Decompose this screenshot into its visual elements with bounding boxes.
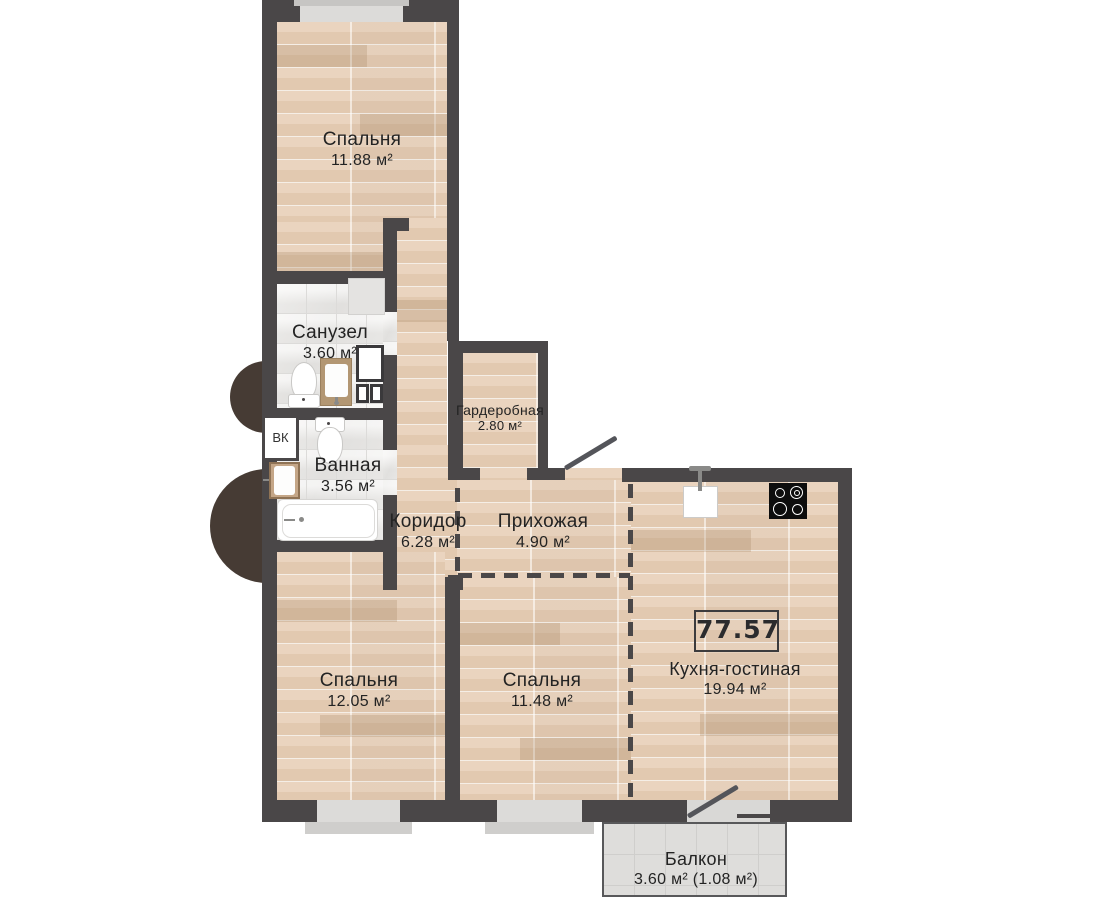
entry-door-leaf bbox=[564, 435, 618, 470]
label-balcony: Балкон 3.60 м² (1.08 м²) bbox=[601, 848, 791, 890]
zone-dash-bedroom-kitchen bbox=[628, 484, 633, 800]
room-name: Спальня bbox=[279, 670, 439, 692]
floor-plan: ВК 77.57 Спальня 11.88 м² Санузел 3.60 м… bbox=[0, 0, 1116, 901]
total-area-value: 77.57 bbox=[696, 615, 780, 644]
wall-bedrooms-divider bbox=[445, 577, 460, 800]
window-bedroom-middle bbox=[497, 800, 582, 822]
label-garderobnaya: Гардеробная 2.80 м² bbox=[440, 402, 560, 434]
wall-bath-east-2 bbox=[383, 355, 397, 450]
wall-bath-east-1 bbox=[383, 271, 397, 312]
plank-shade bbox=[277, 600, 397, 622]
label-sanuzel: Санузел 3.60 м² bbox=[270, 322, 390, 364]
plank-shade bbox=[397, 300, 447, 322]
balcony-door-threshold bbox=[737, 814, 772, 818]
total-area-badge: 77.57 bbox=[694, 610, 779, 652]
room-area: 11.88 м² bbox=[282, 151, 442, 171]
label-bedroom-middle: Спальня 11.48 м² bbox=[462, 670, 622, 712]
sink-vanity bbox=[320, 358, 352, 406]
room-name: Кухня-гостиная bbox=[640, 658, 830, 680]
room-area: 3.60 м² bbox=[270, 344, 390, 364]
floor-garderobnaya-door bbox=[480, 468, 527, 480]
plank-shade bbox=[320, 715, 445, 737]
cabinet-small-right bbox=[370, 384, 383, 403]
room-name: Санузел bbox=[270, 322, 390, 344]
bathtub bbox=[277, 499, 378, 541]
room-name: Спальня bbox=[462, 670, 622, 692]
room-area: 3.56 м² bbox=[288, 477, 408, 497]
label-prihozhaya: Прихожая 4.90 м² bbox=[483, 511, 603, 553]
room-name: Балкон bbox=[601, 848, 791, 870]
room-area: 19.94 м² bbox=[640, 680, 830, 700]
plank-shade bbox=[631, 530, 751, 552]
room-name: Прихожая bbox=[483, 511, 603, 533]
wall-right-top-wing bbox=[447, 0, 459, 341]
room-area: 11.48 м² bbox=[462, 692, 622, 712]
plank-shade bbox=[700, 714, 838, 736]
wall-garderobnaya-top bbox=[448, 341, 548, 353]
room-area: 2.80 м² bbox=[440, 418, 560, 434]
room-area: 12.05 м² bbox=[279, 692, 439, 712]
room-area: 3.60 м² (1.08 м²) bbox=[601, 870, 791, 890]
label-kitchen-living: Кухня-гостиная 19.94 м² bbox=[640, 658, 830, 700]
window-top bbox=[300, 6, 403, 22]
wall-bedroom-door-stub bbox=[383, 218, 409, 231]
cabinet-small-left bbox=[356, 384, 369, 403]
plank-shade bbox=[460, 623, 560, 645]
wall-kitchen-top bbox=[622, 468, 852, 482]
room-name: Ванная bbox=[288, 455, 408, 477]
wall-bottom-3 bbox=[582, 800, 687, 822]
label-vannaya: Ванная 3.56 м² bbox=[288, 455, 408, 497]
toilet bbox=[288, 362, 318, 406]
label-bedroom-top: Спальня 11.88 м² bbox=[282, 129, 442, 171]
shower-cabinet bbox=[348, 278, 385, 315]
plank-shade bbox=[520, 738, 631, 760]
window-sill-bedroom-left bbox=[305, 822, 412, 834]
room-name: Спальня bbox=[282, 129, 442, 151]
window-bedroom-left bbox=[317, 800, 400, 822]
zone-dash-prihozhaya-bedroom bbox=[458, 573, 630, 578]
kitchen-faucet bbox=[689, 466, 711, 492]
wall-entry-piece bbox=[527, 468, 565, 480]
plank-shade bbox=[277, 252, 383, 271]
wall-bottom-4 bbox=[770, 800, 852, 822]
window-sill-bedroom-middle bbox=[485, 822, 594, 834]
room-area: 4.90 м² bbox=[483, 533, 603, 553]
label-koridor: Коридор 6.28 м² bbox=[368, 511, 488, 553]
ventilation-shaft-label: ВК bbox=[272, 430, 288, 445]
room-name: Коридор bbox=[368, 511, 488, 533]
room-name: Гардеробная bbox=[440, 402, 560, 418]
cooktop bbox=[769, 483, 807, 519]
wall-kitchen-right bbox=[838, 468, 852, 822]
wall-bottom-1 bbox=[262, 800, 317, 822]
wall-bottom-2 bbox=[400, 800, 497, 822]
wall-garderobnaya-bottom-left bbox=[448, 468, 480, 480]
label-bedroom-left: Спальня 12.05 м² bbox=[279, 670, 439, 712]
room-area: 6.28 м² bbox=[368, 533, 488, 553]
plank-shade bbox=[277, 45, 367, 67]
